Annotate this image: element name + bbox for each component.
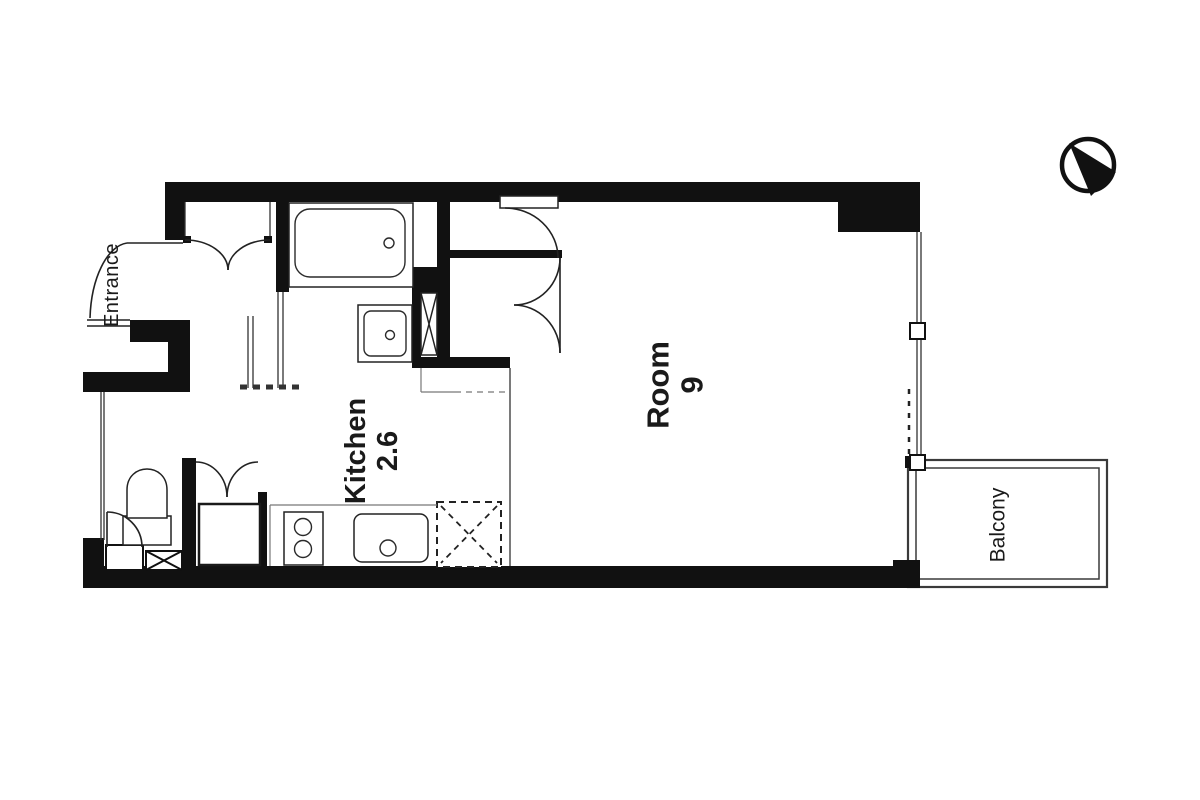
wall-entrance-jamb xyxy=(165,182,185,240)
wall-closet-bottom xyxy=(412,357,510,368)
toilet-icon xyxy=(123,469,171,545)
vanity-sink-icon xyxy=(358,305,412,362)
duct-x-box xyxy=(421,293,437,355)
wall-balcony-corner xyxy=(893,560,920,588)
wall-bath-right-c xyxy=(412,293,421,368)
entrance-label: Entrance xyxy=(101,243,123,327)
wall-top-right-block xyxy=(838,202,920,232)
kitchen-label: Kitchen 2.6 xyxy=(340,398,404,504)
wall-toilet-divider xyxy=(182,458,196,570)
shaft-x-box xyxy=(146,551,182,570)
room-window xyxy=(909,232,925,470)
bathtub-icon xyxy=(289,203,413,287)
wall-closet-divider xyxy=(450,250,562,258)
closet-lower-doors xyxy=(514,258,560,353)
washer-space-icon xyxy=(199,504,260,565)
svg-text:Room: Room xyxy=(641,341,676,429)
svg-text:Entrance: Entrance xyxy=(101,243,123,327)
svg-text:Balcony: Balcony xyxy=(987,487,1010,562)
wall-bath-right-a xyxy=(437,201,450,368)
stove-icon xyxy=(284,512,323,565)
balcony-label: Balcony xyxy=(987,487,1010,562)
washer-closet-doors xyxy=(196,462,258,497)
fridge-icon xyxy=(437,502,501,567)
toilet-room-window xyxy=(101,392,104,540)
wall-bottom xyxy=(83,566,920,588)
hall-closet-sides xyxy=(185,202,270,236)
svg-text:Kitchen: Kitchen xyxy=(340,398,372,504)
floor-plan-page: Entrance Kitchen 2.6 Room 9 Balcony xyxy=(0,0,1200,800)
closet-upper-door xyxy=(500,196,558,258)
room-area-label: 9 xyxy=(675,376,710,393)
floor-plan: Entrance Kitchen 2.6 Room 9 Balcony xyxy=(0,0,1200,800)
wall-opening-box xyxy=(106,545,143,570)
room-label: Room 9 xyxy=(641,341,710,429)
wall-bath-left xyxy=(276,201,289,292)
wall-bath-right-b xyxy=(412,267,437,293)
washroom-partition xyxy=(240,292,302,388)
kitchen-sink-icon xyxy=(354,514,428,562)
kitchen-area-label: 2.6 xyxy=(372,431,404,471)
hall-closet-doors xyxy=(185,240,270,270)
compass-icon xyxy=(1062,139,1116,196)
wall-left-horizontal xyxy=(83,372,190,392)
